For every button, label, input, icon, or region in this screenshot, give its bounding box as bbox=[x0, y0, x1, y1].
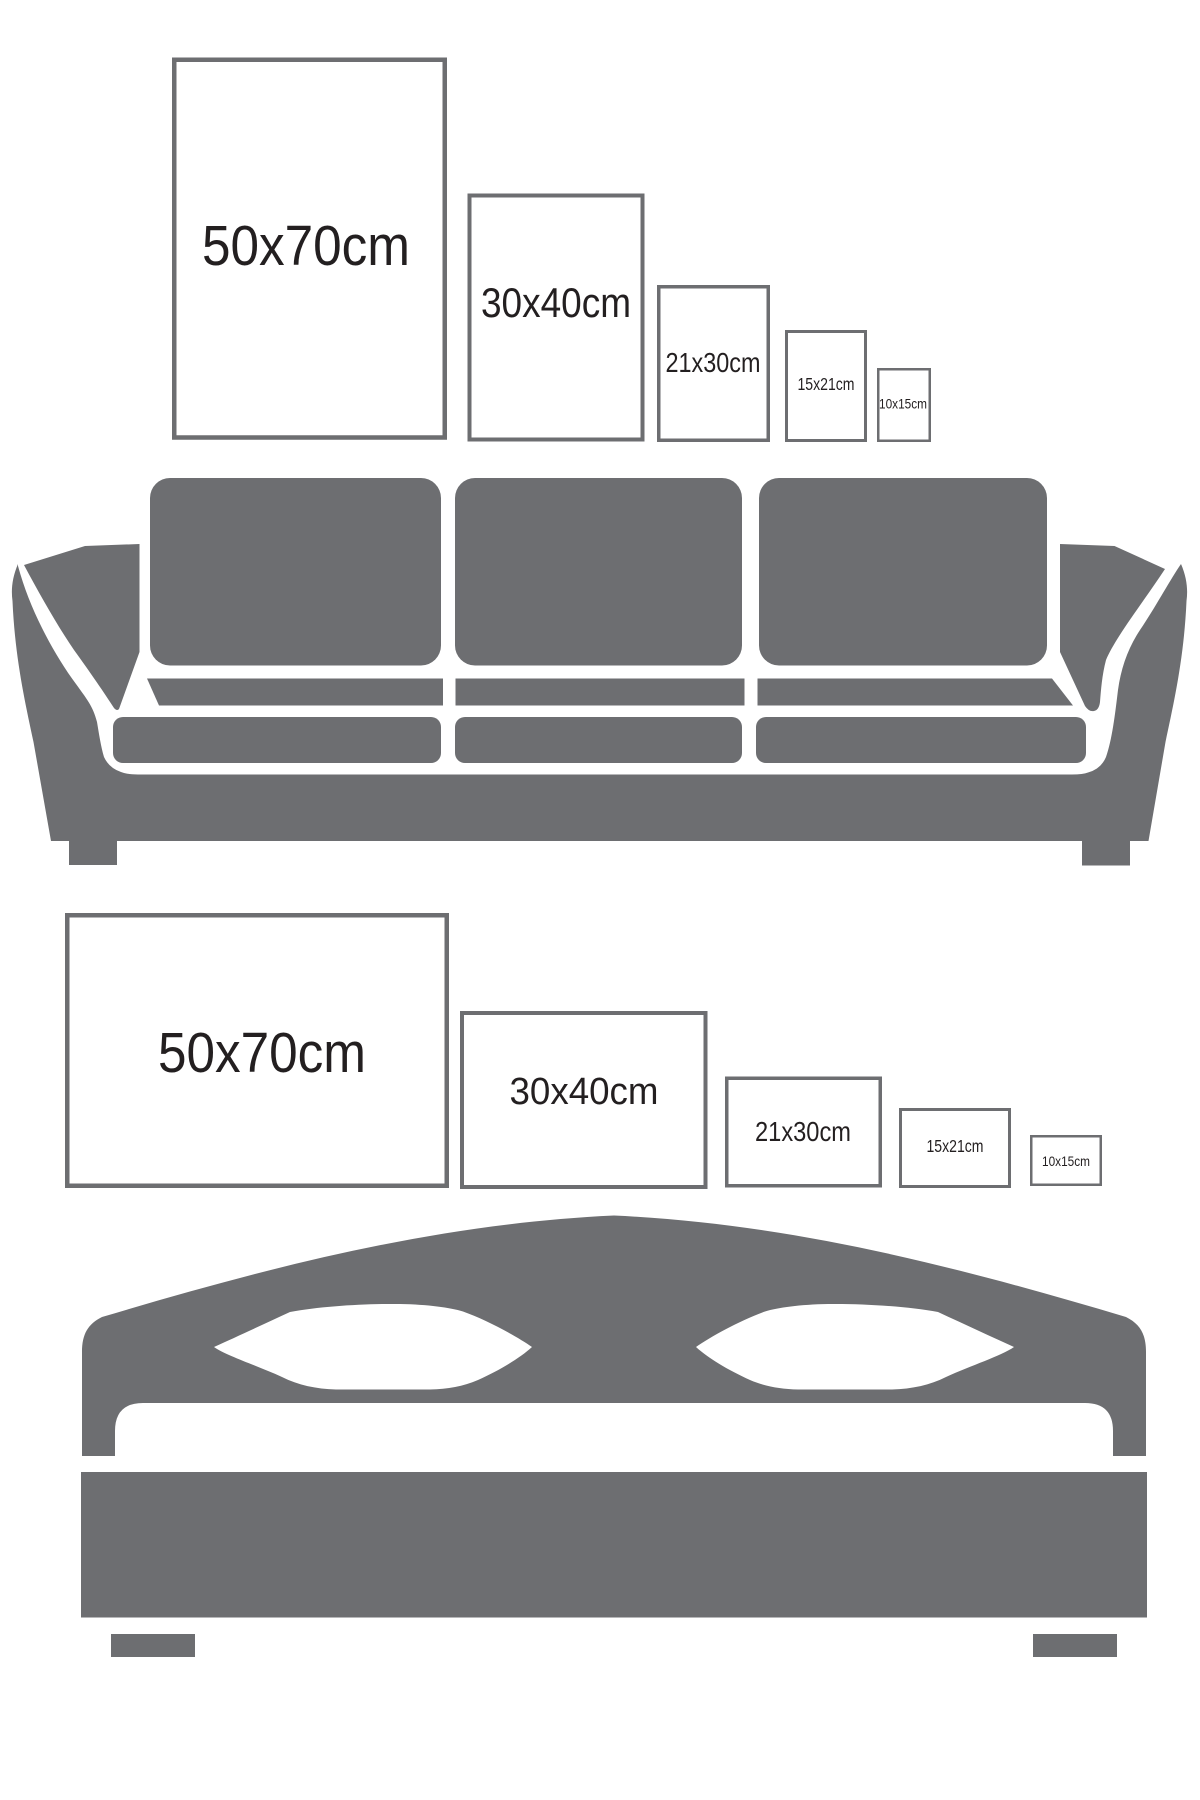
svg-text:15x21cm: 15x21cm bbox=[798, 374, 855, 394]
svg-text:15x21cm: 15x21cm bbox=[927, 1136, 984, 1156]
svg-text:50x70cm: 50x70cm bbox=[202, 214, 410, 278]
svg-text:21x30cm: 21x30cm bbox=[666, 347, 761, 378]
svg-text:10x15cm: 10x15cm bbox=[1042, 1153, 1090, 1169]
svg-text:30x40cm: 30x40cm bbox=[510, 1071, 659, 1113]
svg-text:30x40cm: 30x40cm bbox=[481, 279, 631, 326]
svg-text:10x15cm: 10x15cm bbox=[879, 396, 927, 412]
svg-text:21x30cm: 21x30cm bbox=[755, 1116, 851, 1147]
svg-text:50x70cm: 50x70cm bbox=[158, 1021, 366, 1085]
